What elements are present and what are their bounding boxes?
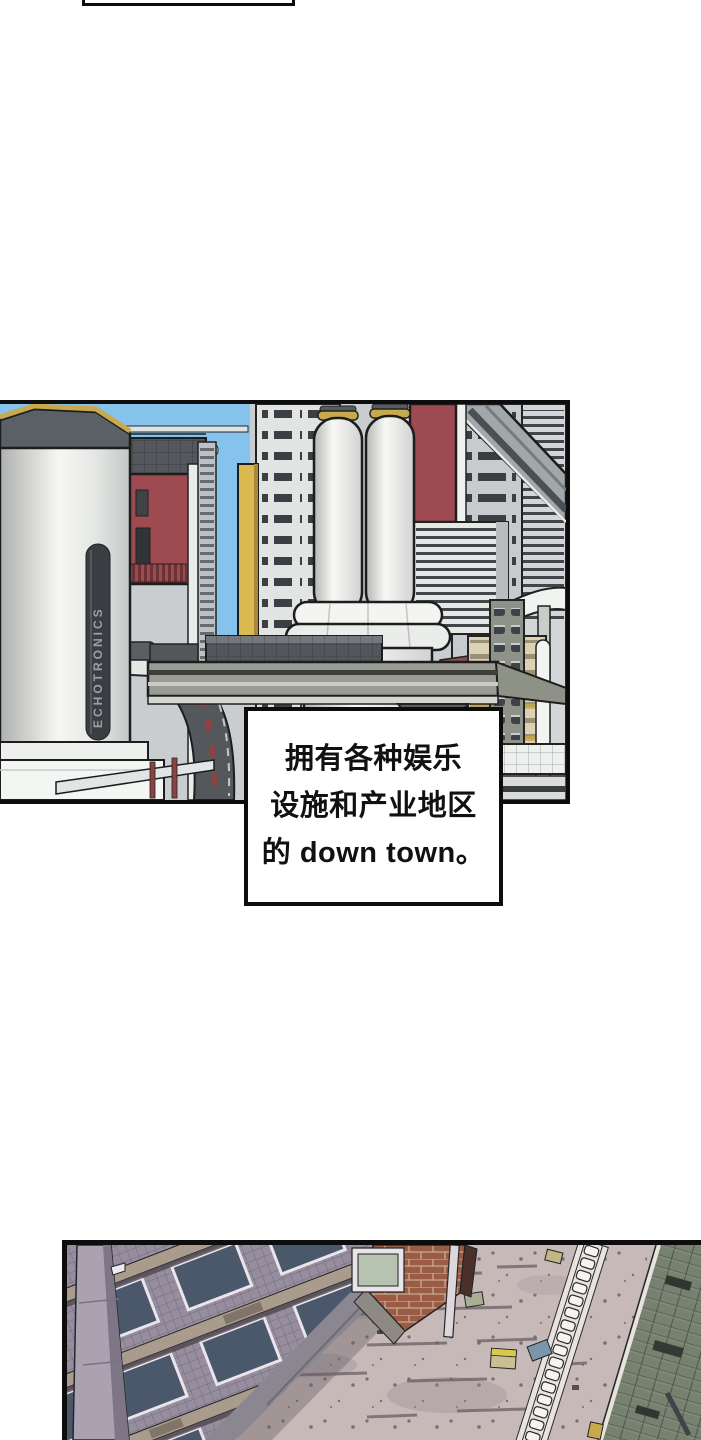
echotronics-sign-text: ECHOTRONICS: [91, 606, 105, 728]
street-scene-illustration: [67, 1245, 701, 1440]
caption-line-3: 的 down town。: [262, 830, 485, 877]
caption-line-1: 拥有各种娱乐: [285, 736, 462, 783]
top-caption-box-partial: [82, 0, 295, 6]
caption-line-2: 设施和产业地区: [270, 783, 477, 830]
comic-page: ECHOTRONICS 拥有各种娱乐 设施和产业地区 的 down town。: [0, 0, 701, 1440]
street-panel: [62, 1240, 701, 1440]
caption-box: 拥有各种娱乐 设施和产业地区 的 down town。: [244, 707, 503, 906]
maroon-building: [128, 474, 192, 584]
